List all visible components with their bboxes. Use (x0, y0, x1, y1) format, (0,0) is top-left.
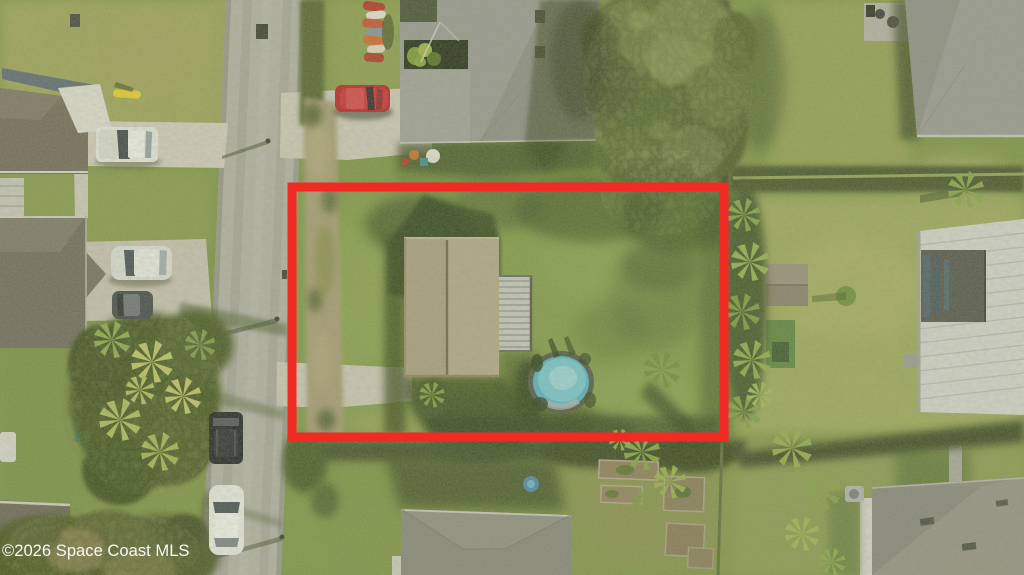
svg-text:©2026 Space Coast MLS: ©2026 Space Coast MLS (2, 541, 190, 560)
